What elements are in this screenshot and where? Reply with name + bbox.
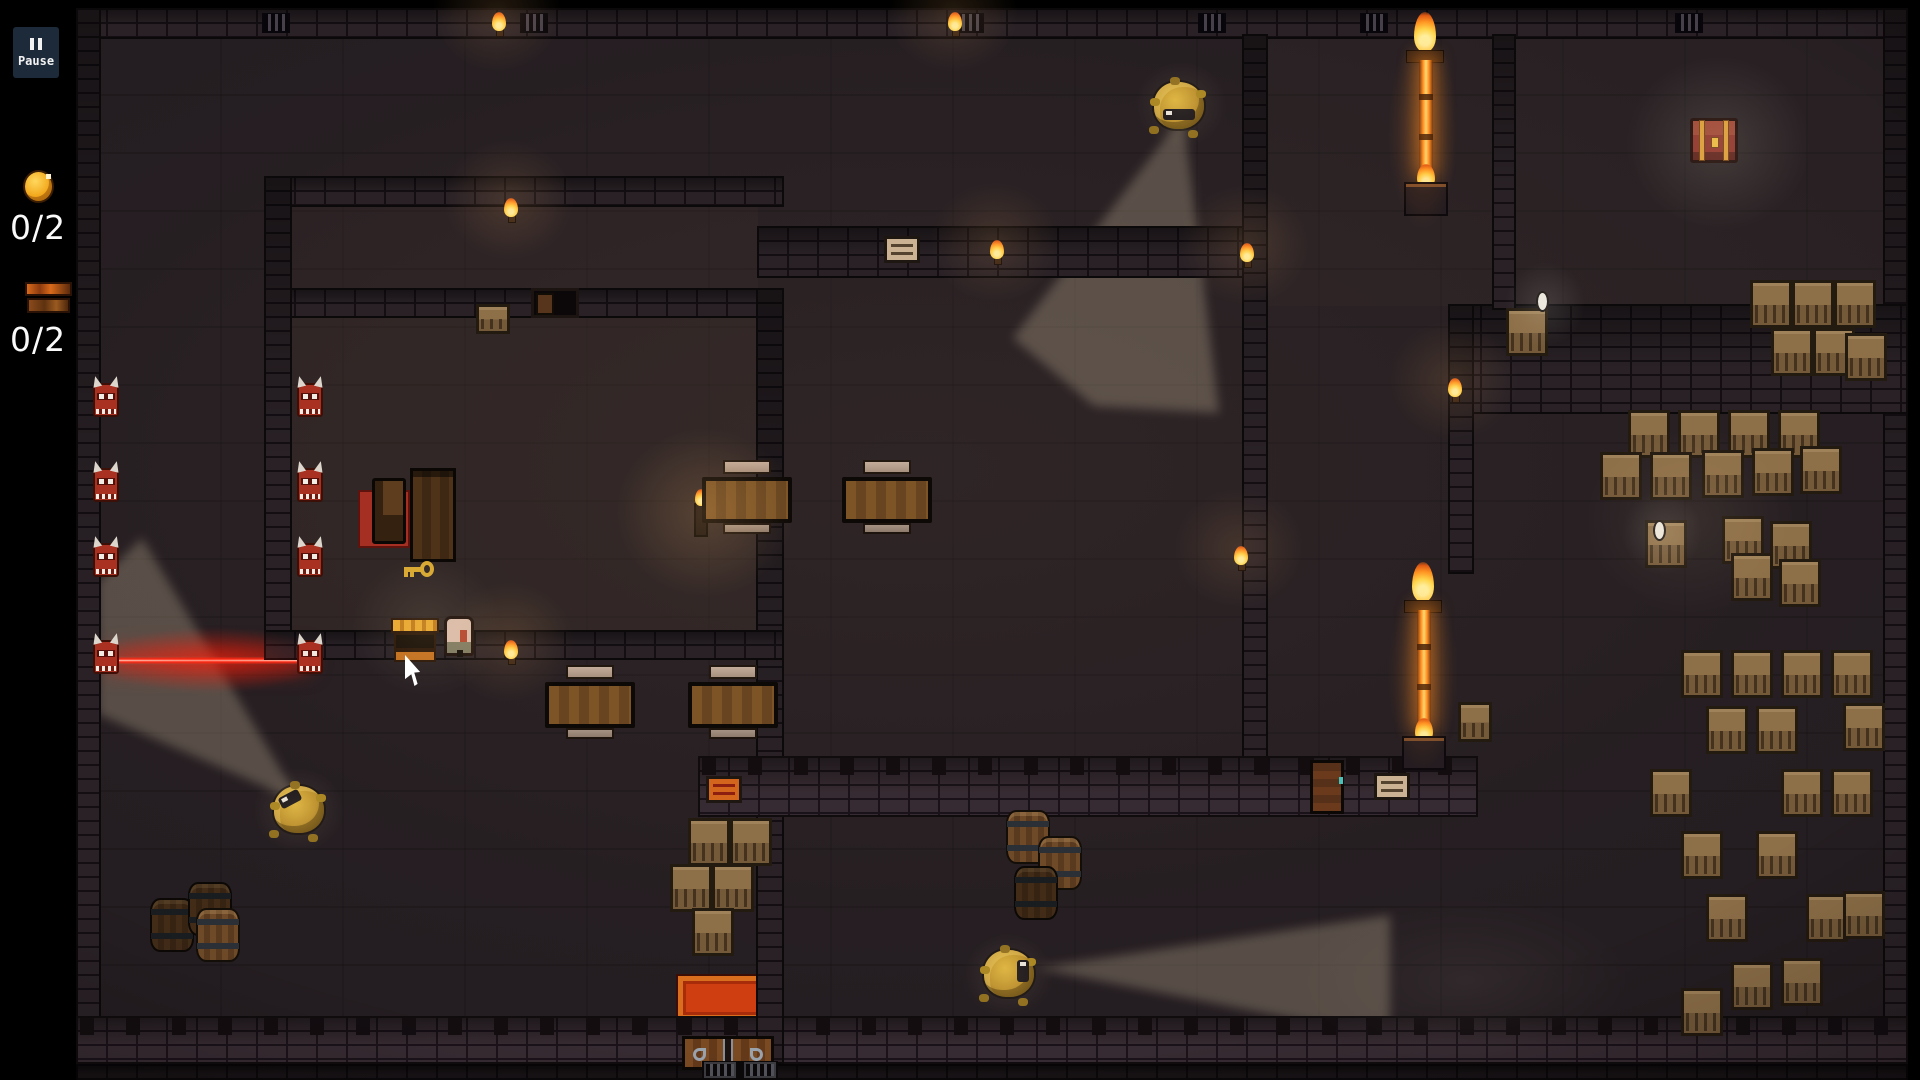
bench — [723, 523, 771, 534]
player-legs — [457, 650, 463, 657]
crate — [1752, 448, 1794, 496]
crate — [1781, 650, 1823, 698]
wall-grate-icon — [262, 13, 290, 33]
torch-flame-icon — [1448, 378, 1462, 397]
wall — [266, 632, 782, 658]
door-hinge-icon — [693, 1048, 706, 1061]
demon-eye — [303, 394, 308, 399]
wall-grate-icon — [1675, 13, 1703, 33]
crate — [1771, 328, 1813, 376]
demon-teeth — [300, 666, 320, 671]
crate — [1506, 308, 1548, 356]
demon-eye — [303, 651, 308, 656]
egg-item[interactable] — [1536, 291, 1549, 312]
demon-eye — [108, 651, 113, 656]
door-hinge-icon — [750, 1048, 763, 1061]
demon-teeth — [300, 569, 320, 574]
wall-sign — [706, 776, 742, 803]
demon-eye — [99, 479, 104, 484]
pause-button[interactable]: Pause — [13, 27, 59, 78]
guard-visor — [1163, 109, 1195, 120]
gate-bars-icon — [744, 1062, 776, 1078]
door-handle-icon — [1339, 777, 1343, 784]
demon-statue — [297, 640, 323, 674]
guard — [984, 950, 1034, 997]
crate — [476, 304, 510, 334]
key-bow — [420, 561, 434, 577]
torch-flame-icon — [492, 12, 506, 31]
crate — [1750, 280, 1792, 328]
barred-gate — [702, 1061, 778, 1079]
demon-eye — [312, 394, 317, 399]
fire-barrier-base — [1404, 182, 1448, 216]
chest-count: 0/2 — [10, 320, 66, 359]
demon-statue — [93, 383, 119, 417]
wall-sign — [884, 236, 920, 263]
barrel — [196, 908, 240, 962]
bench — [709, 728, 757, 739]
wall — [759, 228, 1259, 276]
bench — [709, 665, 757, 679]
demon-eye — [99, 394, 104, 399]
torch-flame-icon — [1234, 546, 1248, 565]
wall — [1244, 36, 1266, 758]
demon-teeth — [96, 666, 116, 671]
fire-beam — [1417, 610, 1431, 726]
key-tooth — [404, 571, 408, 577]
barrel — [1014, 866, 1058, 920]
wall — [578, 290, 781, 316]
crate — [1458, 702, 1492, 742]
torch-flame-icon — [504, 198, 518, 217]
crate — [1756, 831, 1798, 879]
crate — [1792, 280, 1834, 328]
crate — [1834, 280, 1876, 328]
crate — [1681, 988, 1723, 1036]
hud: Pause 0/2 0/2 — [0, 0, 78, 1080]
chest-lock-icon — [1711, 137, 1719, 148]
crate — [1779, 559, 1821, 607]
demon-eye — [303, 479, 308, 484]
crate — [1645, 520, 1687, 568]
demon-eye — [312, 554, 317, 559]
crate — [1731, 650, 1773, 698]
wall-grate-icon — [520, 13, 548, 33]
door-leaf — [536, 293, 554, 315]
table — [545, 682, 635, 728]
chest-icon — [25, 282, 72, 315]
table — [702, 477, 792, 523]
open-chest[interactable] — [391, 618, 439, 662]
demon-eyes — [301, 478, 319, 485]
crate — [1845, 333, 1887, 381]
demon-eyes — [97, 650, 115, 657]
demon-teeth — [96, 494, 116, 499]
wall-sign — [1374, 773, 1410, 800]
crate — [1702, 450, 1744, 498]
game-viewport[interactable] — [0, 0, 1920, 1080]
crate — [1781, 958, 1823, 1006]
wall — [78, 1018, 1906, 1062]
crate — [1706, 706, 1748, 754]
demon-statue — [297, 543, 323, 577]
crate — [1628, 410, 1670, 458]
wall — [78, 10, 99, 1062]
wall — [266, 178, 290, 658]
wall — [1885, 10, 1906, 1062]
guard-visor — [1017, 960, 1029, 982]
crate — [712, 864, 754, 912]
crate — [1843, 891, 1885, 939]
crate — [1806, 894, 1848, 942]
demon-eye — [99, 651, 104, 656]
wall-grate-icon — [1360, 13, 1388, 33]
fire-beam — [1419, 60, 1433, 172]
wall — [1450, 306, 1472, 572]
wall — [78, 1066, 1906, 1080]
chest-front — [394, 650, 436, 662]
demon-eye — [303, 554, 308, 559]
pause-bars-icon — [30, 38, 42, 50]
crate — [1681, 650, 1723, 698]
wall — [758, 290, 782, 1062]
bench — [723, 460, 771, 474]
demon-teeth — [96, 569, 116, 574]
crate — [1831, 650, 1873, 698]
wall — [78, 10, 1906, 37]
crate — [1600, 452, 1642, 500]
torch-flame-icon — [1240, 243, 1254, 262]
table — [842, 477, 932, 523]
demon-eye — [312, 651, 317, 656]
crate — [670, 864, 712, 912]
wall — [266, 178, 782, 205]
closed-chest[interactable] — [1690, 118, 1738, 163]
bench — [863, 523, 911, 534]
crate — [1800, 446, 1842, 494]
demon-eye — [108, 479, 113, 484]
chair — [372, 478, 406, 544]
torch-flame-icon — [990, 240, 1004, 259]
crate — [1843, 703, 1885, 751]
chest-lid — [391, 618, 439, 633]
wooden-door[interactable] — [1310, 760, 1344, 814]
bench — [566, 665, 614, 679]
demon-eyes — [97, 478, 115, 485]
demon-eyes — [301, 553, 319, 560]
crate — [1706, 894, 1748, 942]
pause-label: Pause — [18, 54, 54, 68]
egg-item[interactable] — [1653, 520, 1666, 541]
demon-statue — [297, 468, 323, 502]
wall — [700, 758, 1476, 815]
table — [688, 682, 778, 728]
demon-eyes — [97, 393, 115, 400]
crate — [1650, 769, 1692, 817]
torch-flame-icon — [948, 12, 962, 31]
crate — [1731, 962, 1773, 1010]
chest-strap — [1699, 120, 1705, 161]
player-character — [444, 616, 474, 656]
bench — [566, 728, 614, 739]
demon-statue — [93, 543, 119, 577]
player-mark — [460, 630, 467, 642]
demon-eye — [108, 554, 113, 559]
gate-bars-icon — [704, 1062, 736, 1078]
crate — [688, 818, 730, 866]
guard — [1154, 82, 1204, 129]
demon-eye — [99, 554, 104, 559]
chest-cavity — [394, 633, 436, 650]
demon-teeth — [300, 494, 320, 499]
bench — [863, 460, 911, 474]
crate — [1756, 706, 1798, 754]
wall — [1494, 36, 1514, 308]
guard-visor — [277, 789, 302, 810]
coin-count: 0/2 — [10, 208, 66, 247]
crate — [1681, 831, 1723, 879]
demon-eye — [108, 394, 113, 399]
crate — [1731, 553, 1773, 601]
torch-flame-icon — [504, 640, 518, 659]
crate — [692, 908, 734, 956]
demon-eye — [312, 479, 317, 484]
demon-statue — [93, 468, 119, 502]
wall-grate-icon — [1198, 13, 1226, 33]
demon-teeth — [96, 409, 116, 414]
demon-teeth — [300, 409, 320, 414]
open-doorway[interactable] — [531, 288, 579, 318]
crate — [1831, 769, 1873, 817]
demon-statue — [297, 383, 323, 417]
crate — [1650, 452, 1692, 500]
wardrobe — [410, 468, 456, 562]
fire-barrier-base — [1402, 736, 1446, 770]
key-item[interactable] — [402, 560, 434, 580]
chest-strap — [1723, 120, 1729, 161]
demon-eyes — [97, 553, 115, 560]
key-tooth — [410, 571, 414, 577]
demon-eyes — [301, 650, 319, 657]
demon-statue — [93, 640, 119, 674]
crate — [1781, 769, 1823, 817]
coin-icon — [25, 172, 52, 201]
guard — [274, 786, 324, 833]
crate — [730, 818, 772, 866]
demon-eyes — [301, 393, 319, 400]
